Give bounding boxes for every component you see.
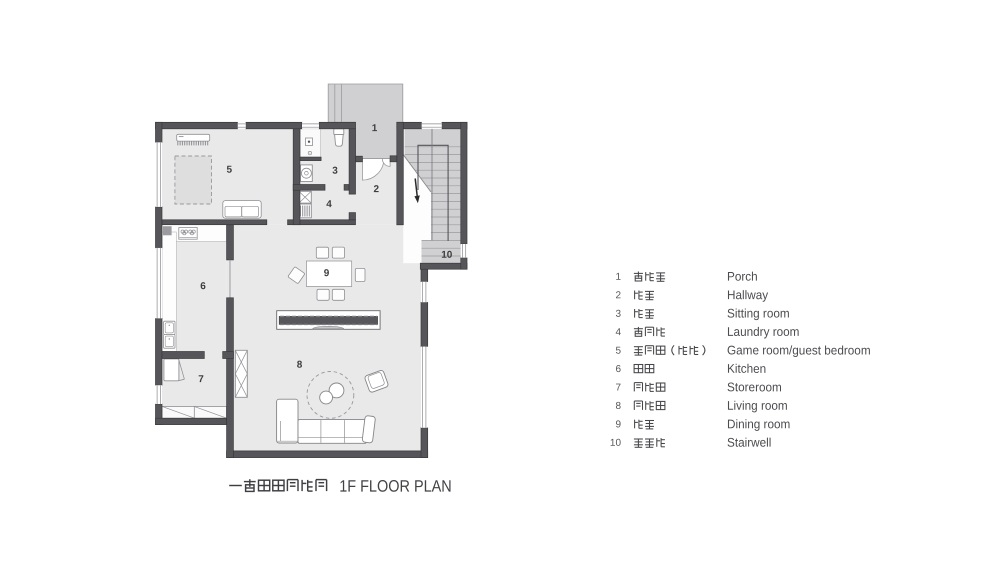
svg-text:10: 10 bbox=[441, 250, 453, 261]
svg-text:7: 7 bbox=[198, 374, 204, 385]
svg-text:3: 3 bbox=[615, 309, 621, 320]
svg-text:9: 9 bbox=[615, 419, 621, 430]
svg-text:6: 6 bbox=[200, 281, 206, 292]
svg-text:10: 10 bbox=[610, 438, 622, 449]
svg-text:1: 1 bbox=[372, 123, 378, 134]
svg-text:2: 2 bbox=[615, 290, 621, 301]
svg-text:Hallway: Hallway bbox=[727, 288, 769, 302]
svg-text:6: 6 bbox=[615, 364, 621, 375]
svg-text:Dining room: Dining room bbox=[727, 417, 790, 431]
svg-text:5: 5 bbox=[227, 165, 233, 176]
svg-text:Porch: Porch bbox=[727, 269, 758, 283]
svg-text:8: 8 bbox=[297, 360, 303, 371]
svg-text:7: 7 bbox=[615, 382, 621, 393]
svg-text:Sitting room: Sitting room bbox=[727, 306, 790, 320]
svg-text:9: 9 bbox=[324, 268, 330, 279]
svg-text:Kitchen: Kitchen bbox=[727, 361, 766, 375]
svg-text:1F FLOOR PLAN: 1F FLOOR PLAN bbox=[339, 478, 452, 496]
svg-text:Laundry room: Laundry room bbox=[727, 325, 799, 339]
svg-text:2: 2 bbox=[374, 184, 380, 195]
svg-text:3: 3 bbox=[332, 166, 338, 177]
svg-text:5: 5 bbox=[615, 346, 621, 357]
svg-text:4: 4 bbox=[326, 199, 332, 210]
svg-text:4: 4 bbox=[615, 327, 621, 338]
svg-text:8: 8 bbox=[615, 401, 621, 412]
svg-text:Storeroom: Storeroom bbox=[727, 380, 782, 394]
svg-text:Living room: Living room bbox=[727, 398, 788, 412]
svg-text:Stairwell: Stairwell bbox=[727, 435, 771, 449]
svg-text:Game room/guest bedroom: Game room/guest bedroom bbox=[727, 343, 871, 358]
svg-text:1: 1 bbox=[615, 272, 621, 283]
